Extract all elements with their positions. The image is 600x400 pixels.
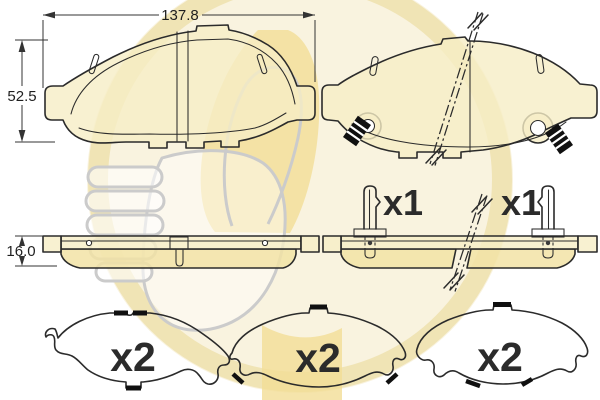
logo-finger bbox=[88, 167, 162, 187]
lug-hole-right bbox=[531, 121, 546, 136]
arrow-left bbox=[43, 12, 55, 19]
height-dimension-label: 52.5 bbox=[7, 88, 36, 105]
plate-tab-right bbox=[578, 236, 597, 252]
drawing-canvas: 137.8 52.5 bbox=[0, 0, 600, 400]
plate-tab-left bbox=[43, 236, 61, 252]
sensor-rivet bbox=[368, 241, 372, 245]
plate-tab-left bbox=[323, 236, 341, 252]
arrow-bottom bbox=[19, 130, 26, 142]
qty-label-shim-right: x2 bbox=[477, 334, 523, 380]
brake-pad-technical-drawing: 137.8 52.5 bbox=[0, 0, 600, 400]
qty-label-shim-middle: x2 bbox=[295, 335, 341, 381]
thickness-dimension-label: 16.0 bbox=[6, 243, 35, 260]
logo-finger bbox=[86, 191, 164, 211]
plate-tab-right bbox=[301, 236, 319, 252]
qty-label-shim-left: x2 bbox=[110, 334, 156, 380]
friction-material-right bbox=[467, 249, 575, 268]
backing-plate bbox=[341, 236, 578, 249]
sensor-rivet bbox=[546, 241, 550, 245]
friction-material-left bbox=[341, 249, 456, 268]
rivet-hole-left bbox=[86, 240, 91, 245]
logo-finger bbox=[87, 215, 163, 235]
width-dimension-label: 137.8 bbox=[161, 7, 199, 24]
qty-label-sensor-left: x1 bbox=[383, 182, 423, 223]
qty-label-sensor-right: x1 bbox=[501, 182, 541, 223]
arrow-top bbox=[19, 40, 26, 52]
friction-material bbox=[61, 249, 296, 268]
rivet-hole-right bbox=[262, 240, 267, 245]
pad-side-view bbox=[43, 236, 319, 268]
